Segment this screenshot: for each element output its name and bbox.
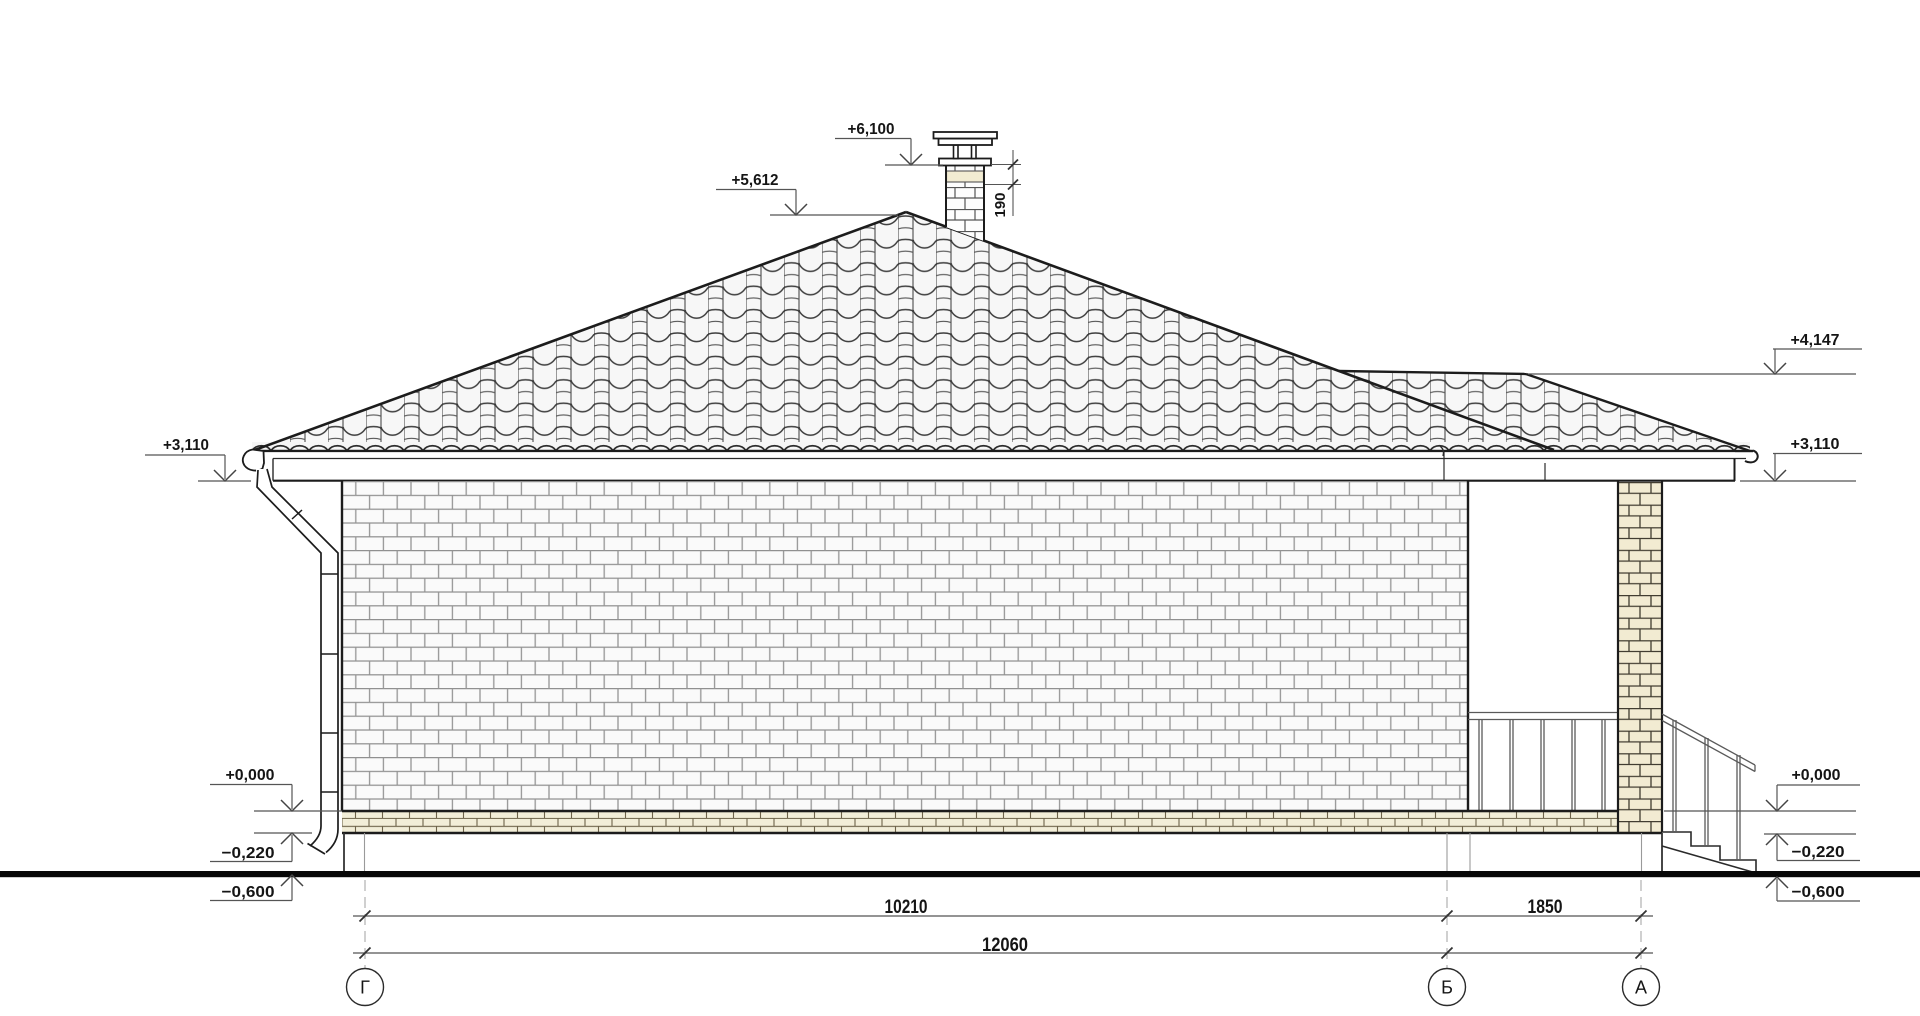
svg-text:+3,110: +3,110 — [163, 437, 209, 454]
svg-text:−0,220: −0,220 — [222, 845, 275, 862]
svg-text:−0,220: −0,220 — [1792, 844, 1845, 861]
svg-text:Г: Г — [360, 978, 370, 998]
svg-text:−0,600: −0,600 — [1792, 884, 1845, 901]
svg-text:10210: 10210 — [885, 897, 928, 918]
svg-text:1850: 1850 — [1528, 897, 1563, 918]
svg-text:+6,100: +6,100 — [848, 121, 895, 138]
svg-text:Б: Б — [1441, 978, 1453, 998]
svg-text:А: А — [1635, 978, 1647, 998]
svg-text:+0,000: +0,000 — [226, 767, 275, 784]
svg-text:190: 190 — [993, 193, 1009, 218]
svg-text:+3,110: +3,110 — [1791, 436, 1840, 453]
svg-text:12060: 12060 — [982, 935, 1028, 956]
svg-text:+0,000: +0,000 — [1792, 767, 1841, 784]
svg-text:+5,612: +5,612 — [732, 172, 779, 189]
svg-text:+4,147: +4,147 — [1791, 332, 1840, 349]
svg-text:−0,600: −0,600 — [222, 884, 275, 901]
